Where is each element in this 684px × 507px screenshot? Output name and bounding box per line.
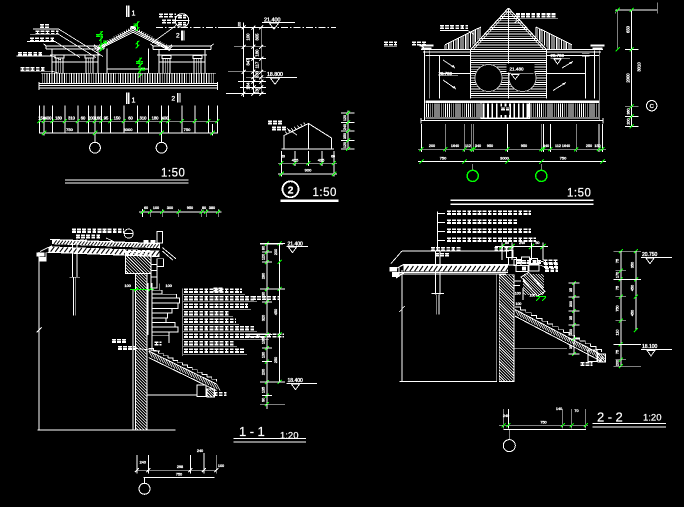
svg-text:100: 100	[516, 302, 522, 306]
svg-text:310: 310	[140, 116, 148, 121]
svg-text:100: 100	[515, 292, 521, 296]
svg-text:20.760: 20.760	[439, 71, 453, 76]
svg-text:350: 350	[631, 262, 635, 268]
svg-text:180: 180	[55, 116, 63, 121]
svg-text:280: 280	[262, 273, 266, 279]
svg-text:180: 180	[152, 116, 160, 121]
svg-text:750: 750	[440, 155, 447, 160]
svg-text:90: 90	[262, 398, 266, 402]
svg-text:140: 140	[556, 407, 562, 411]
svg-text:1:50: 1:50	[567, 188, 591, 200]
svg-text:20.760: 20.760	[551, 53, 565, 58]
svg-text:184: 184	[246, 82, 251, 90]
svg-text:805: 805	[254, 33, 259, 41]
svg-text:240: 240	[503, 414, 509, 418]
svg-text:750: 750	[540, 420, 546, 424]
svg-text:310: 310	[68, 116, 76, 121]
svg-text:330: 330	[254, 70, 259, 78]
svg-text:320: 320	[262, 315, 266, 321]
svg-text:1640: 1640	[562, 144, 570, 148]
svg-text:120: 120	[262, 254, 266, 260]
svg-text:135: 135	[262, 338, 266, 344]
svg-text:75: 75	[616, 350, 620, 354]
svg-text:2: 2	[176, 33, 180, 40]
svg-text:300: 300	[167, 206, 173, 210]
svg-text:200: 200	[626, 118, 630, 124]
svg-text:1-1: 1-1	[239, 424, 268, 439]
svg-text:847: 847	[246, 58, 251, 66]
svg-text:400: 400	[45, 116, 53, 121]
svg-text:170: 170	[616, 272, 620, 278]
svg-text:300: 300	[569, 329, 573, 335]
svg-text:60: 60	[331, 155, 335, 159]
svg-text:100: 100	[125, 284, 131, 288]
svg-text:1: 1	[132, 11, 136, 18]
svg-text:100: 100	[218, 464, 224, 468]
svg-text:340: 340	[543, 144, 549, 148]
svg-text:80: 80	[202, 206, 206, 210]
svg-text:2: 2	[288, 185, 294, 197]
svg-text:160: 160	[95, 116, 103, 121]
svg-text:450: 450	[274, 309, 278, 315]
svg-text:3010: 3010	[637, 62, 642, 72]
svg-text:100: 100	[530, 293, 536, 297]
svg-text:95: 95	[104, 116, 109, 121]
svg-text:200: 200	[274, 249, 278, 255]
svg-text:21.480: 21.480	[510, 67, 524, 72]
svg-text:1:50: 1:50	[161, 168, 185, 180]
svg-text:100: 100	[238, 22, 242, 28]
svg-text:1:20: 1:20	[280, 431, 299, 442]
svg-text:200: 200	[616, 360, 620, 366]
svg-text:3000: 3000	[500, 155, 509, 160]
svg-text:650: 650	[625, 25, 630, 33]
svg-text:1:50: 1:50	[313, 187, 337, 199]
svg-text:340: 340	[475, 144, 481, 148]
svg-text:100: 100	[153, 206, 159, 210]
svg-text:80: 80	[262, 246, 266, 250]
svg-text:750: 750	[560, 155, 567, 160]
svg-text:750: 750	[616, 305, 620, 311]
svg-text:35: 35	[569, 316, 573, 320]
svg-text:60: 60	[281, 155, 285, 159]
svg-text:75: 75	[616, 259, 620, 263]
svg-text:425: 425	[292, 157, 299, 162]
svg-text:60: 60	[144, 206, 148, 210]
svg-text:950: 950	[487, 144, 493, 148]
svg-text:117: 117	[254, 61, 259, 68]
svg-text:900: 900	[305, 168, 312, 173]
svg-text:110: 110	[616, 329, 620, 335]
svg-text:60: 60	[81, 116, 86, 121]
svg-text:250: 250	[274, 357, 278, 363]
svg-text:298: 298	[177, 465, 183, 469]
svg-text:240: 240	[343, 124, 347, 130]
svg-text:750: 750	[66, 127, 73, 132]
svg-text:130: 130	[262, 352, 266, 358]
svg-text:1:20: 1:20	[643, 413, 662, 424]
svg-text:130: 130	[262, 292, 266, 298]
svg-text:2: 2	[172, 96, 176, 103]
svg-text:60: 60	[128, 116, 133, 121]
svg-text:35: 35	[569, 345, 573, 349]
svg-text:750: 750	[184, 127, 191, 132]
svg-text:1640: 1640	[451, 144, 459, 148]
svg-text:240: 240	[140, 461, 146, 465]
svg-text:750: 750	[176, 473, 182, 477]
svg-text:50: 50	[505, 241, 509, 245]
svg-text:180: 180	[254, 49, 259, 57]
svg-text:3000: 3000	[124, 127, 134, 132]
svg-text:250: 250	[586, 144, 592, 148]
svg-text:100: 100	[166, 284, 172, 288]
svg-text:425: 425	[318, 157, 325, 162]
svg-text:135: 135	[262, 387, 266, 393]
svg-text:35: 35	[569, 288, 573, 292]
svg-text:200: 200	[429, 144, 435, 148]
svg-text:240: 240	[519, 241, 525, 245]
svg-text:2000: 2000	[625, 73, 630, 83]
svg-text:150: 150	[114, 116, 122, 121]
svg-text:400: 400	[162, 116, 170, 121]
svg-text:50: 50	[536, 241, 540, 245]
svg-text:240: 240	[197, 449, 203, 453]
svg-text:70: 70	[574, 409, 578, 413]
svg-text:120: 120	[343, 142, 347, 148]
svg-text:112: 112	[555, 144, 561, 148]
svg-text:C: C	[650, 104, 654, 110]
svg-text:450: 450	[631, 285, 635, 291]
svg-text:350: 350	[343, 133, 347, 139]
svg-text:300: 300	[569, 301, 573, 307]
svg-text:380: 380	[209, 206, 215, 210]
svg-text:200: 200	[262, 369, 266, 375]
svg-text:2-2: 2-2	[597, 410, 626, 425]
svg-text:950: 950	[187, 206, 193, 210]
svg-text:120: 120	[343, 115, 347, 121]
svg-text:75: 75	[616, 286, 620, 290]
svg-text:450: 450	[631, 310, 635, 316]
svg-text:130: 130	[254, 86, 259, 94]
svg-text:1: 1	[132, 98, 136, 105]
svg-text:112: 112	[465, 144, 471, 148]
svg-text:150: 150	[594, 144, 600, 148]
svg-text:100: 100	[246, 33, 251, 41]
svg-text:950: 950	[521, 144, 527, 148]
svg-text:360: 360	[626, 108, 630, 114]
